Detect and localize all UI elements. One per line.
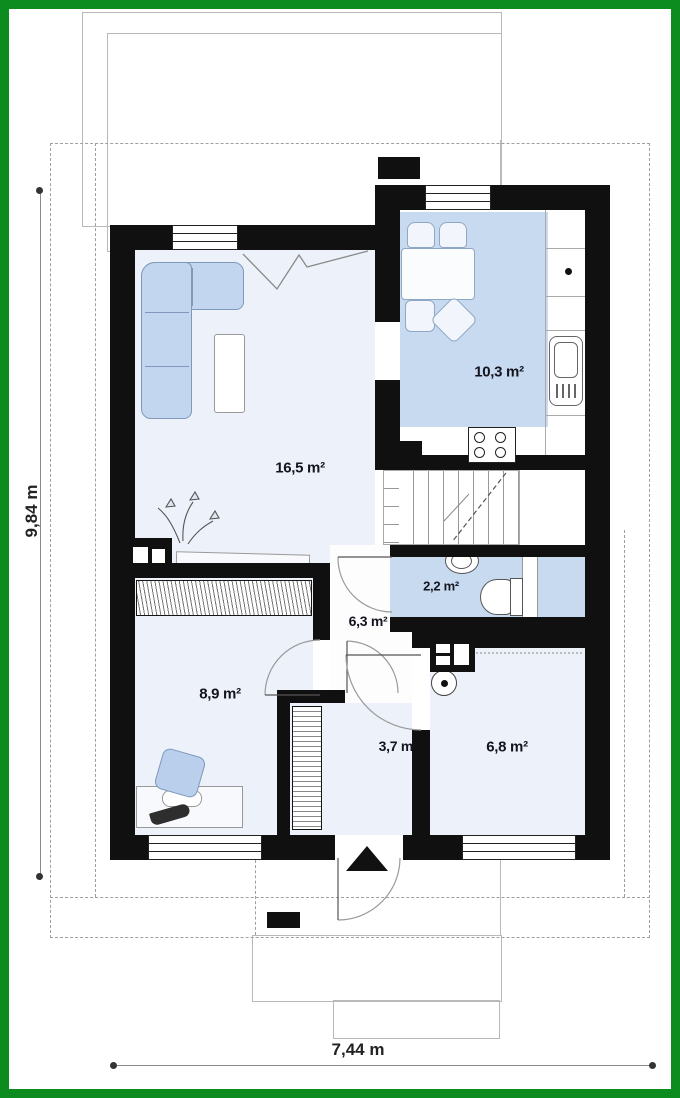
eaves-dashed-line-right — [624, 530, 625, 897]
wall-top-left — [110, 225, 400, 250]
kitchen-counter-edge — [545, 210, 546, 455]
counter-segment-line — [546, 415, 585, 416]
staircase-winder — [384, 471, 399, 544]
wall-jog — [277, 690, 345, 703]
counter-segment-line — [546, 296, 585, 297]
cooktop — [468, 427, 516, 463]
wall-wc-top — [390, 545, 610, 557]
window — [462, 835, 576, 860]
window — [425, 185, 491, 210]
porch-outline — [252, 935, 502, 1002]
dimension-line-horizontal — [113, 1065, 653, 1066]
entrance-arrow — [346, 846, 388, 871]
corner-sofa-chaise — [141, 262, 192, 419]
boiler-unit — [430, 638, 475, 672]
sofa-cushion-line — [145, 312, 189, 313]
dining-chair — [407, 222, 435, 248]
wc-area-label: 2,2 m² — [423, 579, 459, 594]
window — [148, 835, 262, 860]
chimney-top — [378, 157, 420, 179]
vestibule-area-label: 3,7 m² — [379, 738, 418, 754]
porch-dashed-line — [255, 860, 256, 935]
utility-area-label: 6,8 m² — [486, 739, 528, 756]
flue-opening — [133, 547, 148, 563]
porch-step-block — [267, 912, 300, 928]
wall-kitchen-divider-upper — [375, 210, 400, 322]
toilet-bowl — [480, 579, 514, 615]
hallway-area-label: 6,3 m² — [349, 613, 388, 629]
counter-segment-line — [546, 248, 585, 249]
eaves-dashed-line-bottom — [50, 897, 650, 898]
eaves-dashed-line-left — [95, 143, 96, 897]
wall-bedroom-right-upper — [313, 563, 330, 640]
counter-segment-line — [546, 330, 585, 331]
dining-table — [401, 248, 475, 300]
kitchen-sink-basin — [554, 342, 578, 378]
window — [172, 225, 238, 250]
wall-right — [585, 185, 610, 860]
dining-chair — [439, 222, 467, 248]
wc-shower-partition — [522, 557, 538, 617]
vestibule-wardrobe — [292, 706, 322, 830]
wall-top-right — [375, 185, 610, 210]
kitchen-area-label: 10,3 m² — [474, 364, 524, 381]
sofa-cushion-line — [145, 366, 189, 367]
coffee-table — [214, 334, 245, 413]
wall-wc-bottom — [390, 617, 610, 632]
wall-bedroom-right-lower — [277, 703, 290, 835]
bedroom-area-label: 8,9 m² — [199, 686, 241, 703]
toilet-tank — [510, 578, 523, 616]
width-dimension-label: 7,44 m — [313, 1040, 403, 1060]
dimension-dot — [36, 873, 43, 880]
dimension-dot — [649, 1062, 656, 1069]
kitchen-sink-drainer — [556, 384, 576, 398]
staircase — [383, 470, 520, 545]
sofa-cushion-line — [192, 268, 193, 306]
height-dimension-label: 9,84 m — [22, 476, 42, 546]
bedroom-wardrobe — [136, 580, 312, 616]
wall-kitchen-stub — [398, 441, 422, 455]
living-room-area-label: 16,5 m² — [275, 460, 325, 477]
boiler-pipe-dot — [441, 680, 448, 687]
counter-knob-dot — [565, 268, 572, 275]
porch-step-outline — [333, 1000, 500, 1039]
chimney-left — [110, 538, 172, 572]
floor-plan-canvas: 9,84 m 7,44 m — [0, 0, 680, 1098]
dimension-dot — [36, 187, 43, 194]
dimension-dot — [110, 1062, 117, 1069]
flue-opening — [152, 549, 165, 563]
dining-chair — [405, 300, 435, 332]
